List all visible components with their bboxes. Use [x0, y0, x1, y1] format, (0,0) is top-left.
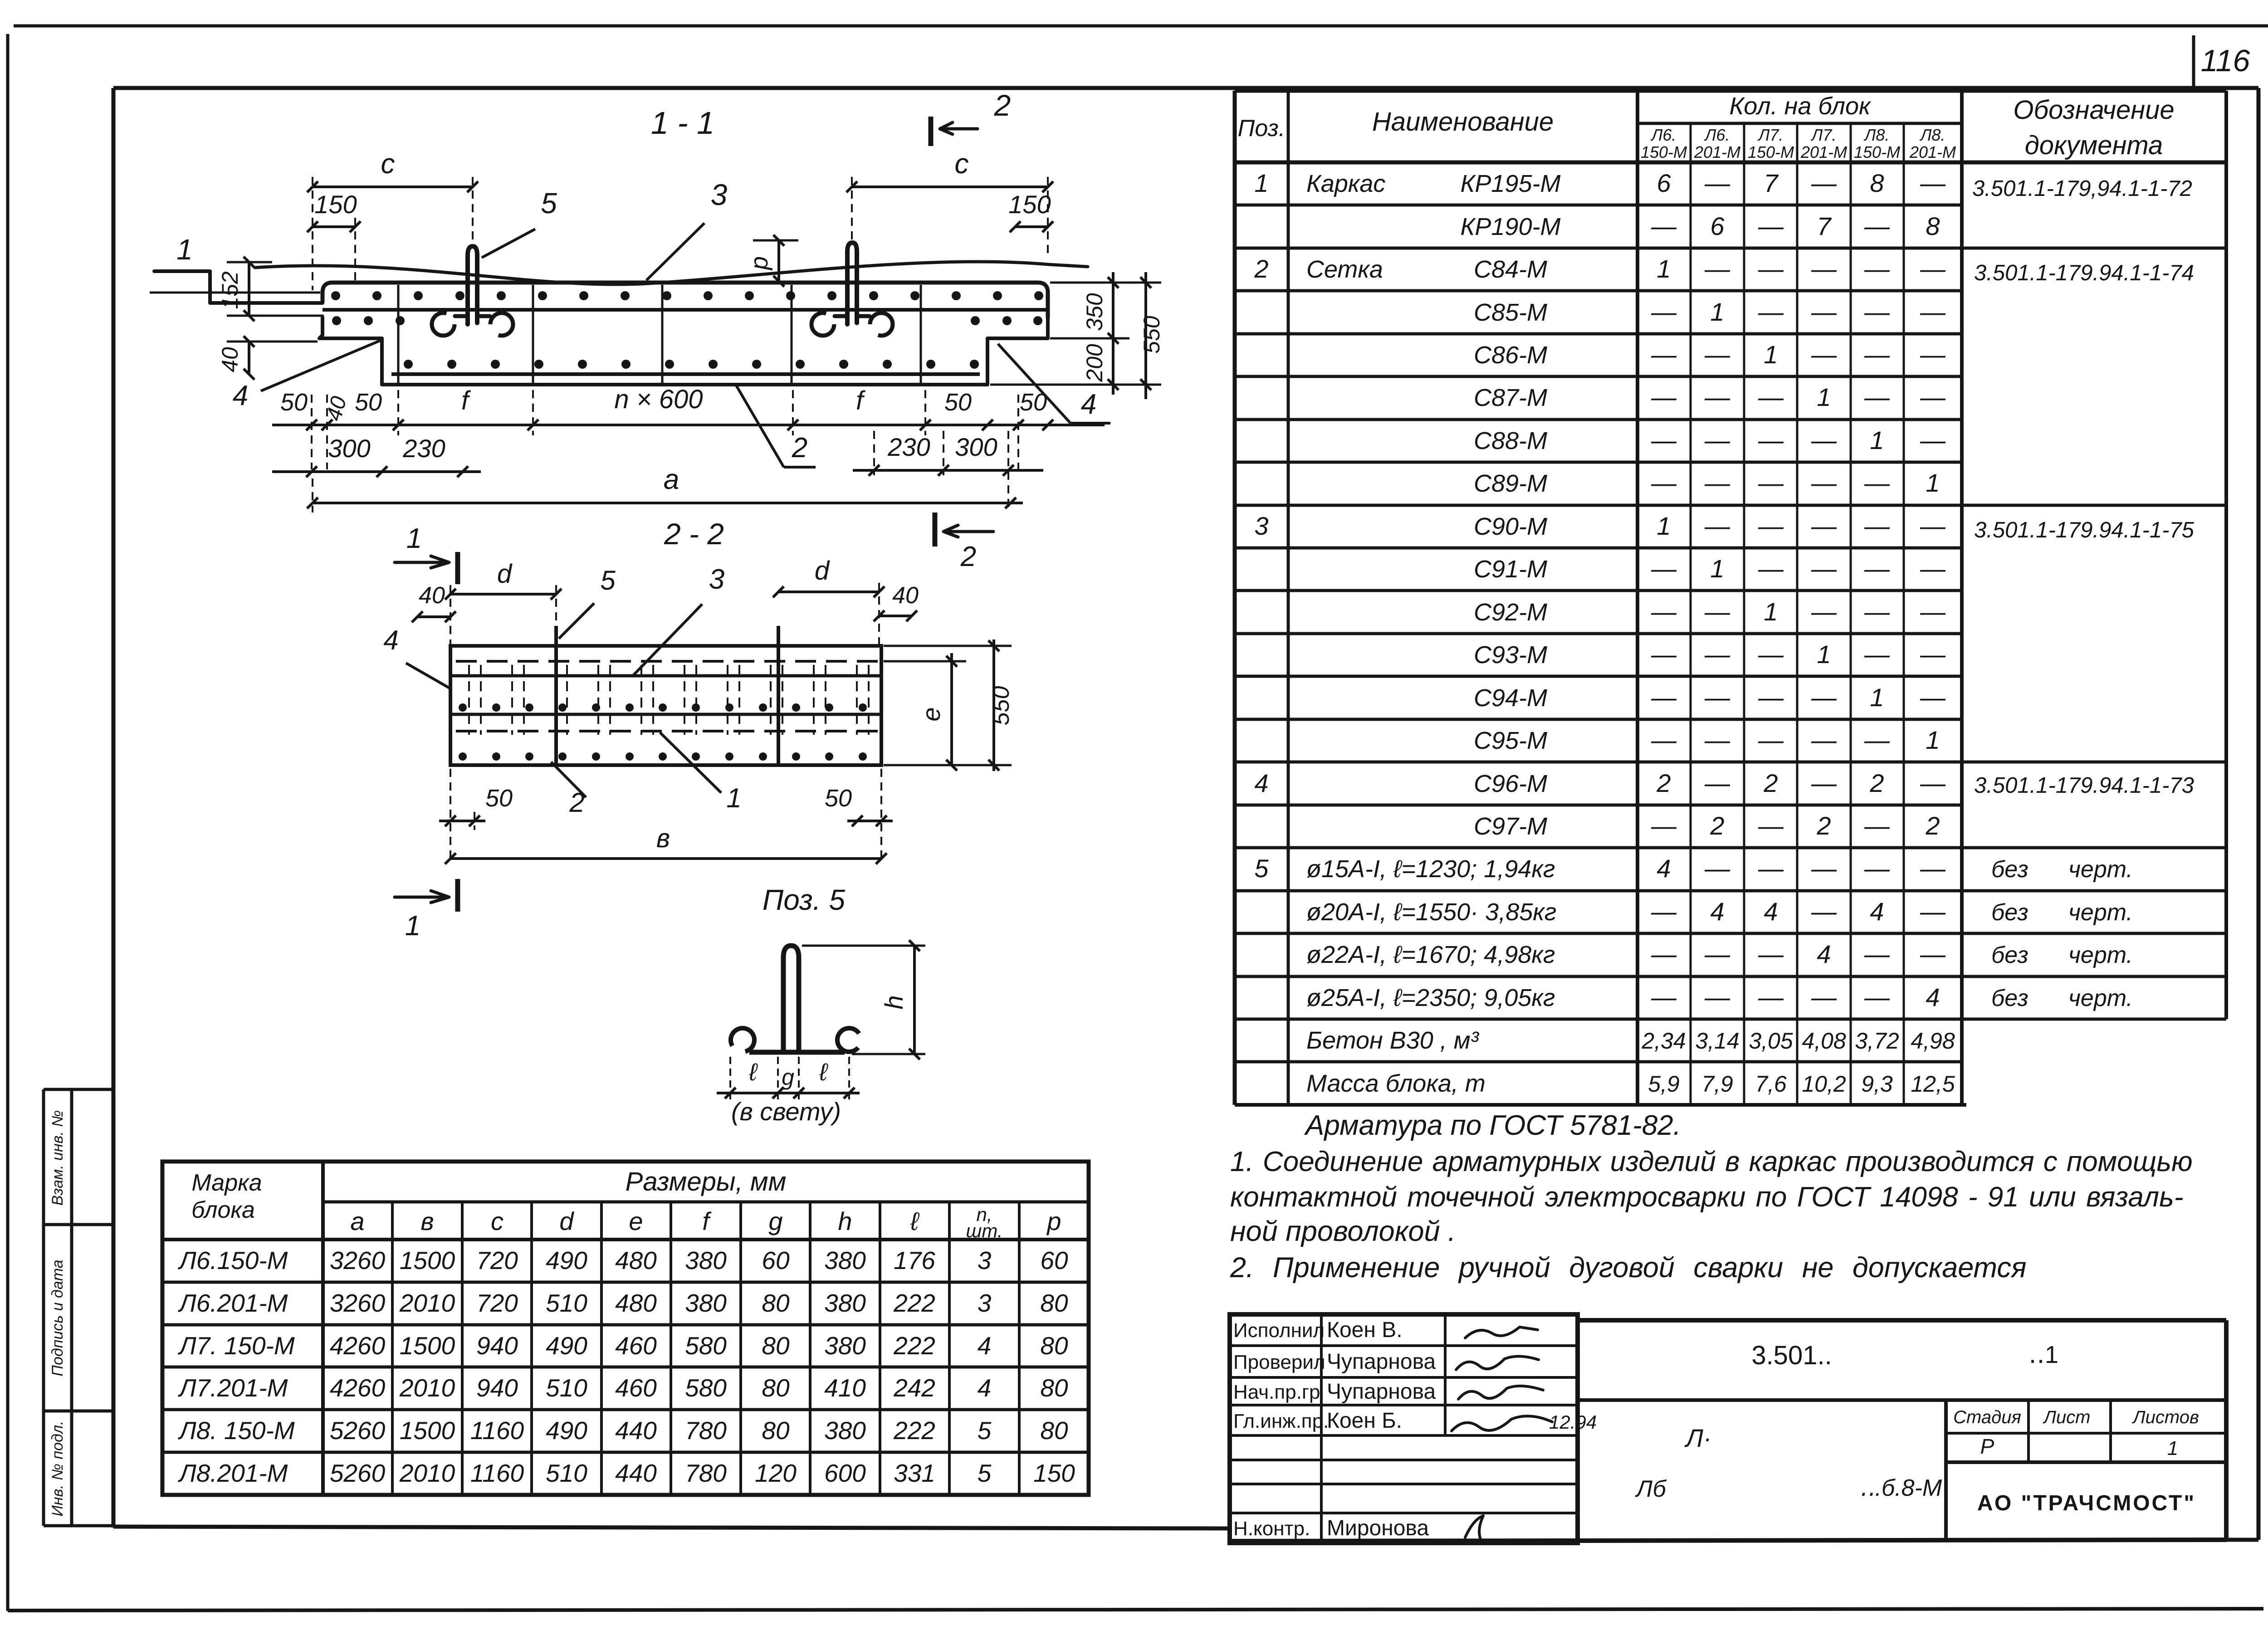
- svg-text:2010: 2010: [399, 1459, 455, 1487]
- svg-text:150: 150: [1033, 1459, 1075, 1487]
- svg-text:Кол. на блок: Кол. на блок: [1729, 93, 1872, 120]
- svg-text:9,3: 9,3: [1861, 1071, 1893, 1097]
- svg-text:60: 60: [1040, 1246, 1068, 1274]
- svg-text:—: —: [1758, 683, 1784, 712]
- svg-text:80: 80: [762, 1332, 790, 1360]
- svg-text:3.501..: 3.501..: [1751, 1341, 1832, 1370]
- svg-text:940: 940: [476, 1374, 518, 1402]
- svg-text:4: 4: [978, 1332, 992, 1360]
- svg-text:Бетон В30 , м³: Бетон В30 , м³: [1306, 1027, 1480, 1054]
- svg-text:n × 600: n × 600: [614, 385, 703, 414]
- svg-text:—: —: [1651, 940, 1677, 968]
- svg-text:780: 780: [685, 1459, 727, 1487]
- svg-text:—: —: [1758, 383, 1784, 411]
- svg-text:—: —: [1920, 254, 1946, 283]
- svg-text:h: h: [880, 995, 908, 1009]
- svg-text:201-М: 201-М: [1800, 143, 1847, 161]
- svg-text:—: —: [1811, 683, 1837, 712]
- svg-text:4: 4: [1657, 854, 1671, 883]
- svg-text:—: —: [1920, 897, 1946, 926]
- svg-text:3.501.1-179.94.1-1-73: 3.501.1-179.94.1-1-73: [1974, 773, 2194, 798]
- svg-text:2: 2: [792, 432, 807, 464]
- svg-text:—: —: [1651, 983, 1677, 1011]
- svg-text:—: —: [1704, 254, 1730, 283]
- svg-text:4: 4: [1926, 983, 1940, 1011]
- svg-text:480: 480: [615, 1246, 657, 1274]
- svg-text:КР190-М: КР190-М: [1461, 213, 1561, 240]
- svg-text:—: —: [1758, 983, 1784, 1011]
- svg-text:ø25А-I, ℓ=2350; 9,05кг: ø25А-I, ℓ=2350; 9,05кг: [1306, 984, 1555, 1011]
- svg-text:350: 350: [1082, 293, 1107, 331]
- svg-text:5,9: 5,9: [1648, 1071, 1680, 1097]
- svg-text:380: 380: [824, 1289, 866, 1317]
- svg-text:без: без: [1991, 942, 2028, 968]
- svg-text:Р: Р: [1980, 1435, 1994, 1458]
- svg-text:без: без: [1991, 985, 2028, 1011]
- svg-text:черт.: черт.: [2068, 899, 2133, 926]
- svg-text:3: 3: [711, 178, 728, 211]
- svg-text:Миронова: Миронова: [1327, 1516, 1429, 1540]
- svg-text:600: 600: [824, 1459, 866, 1487]
- svg-text:7: 7: [1817, 212, 1832, 240]
- svg-text:—: —: [1811, 769, 1837, 797]
- svg-text:8: 8: [1870, 169, 1884, 197]
- svg-text:1160: 1160: [470, 1459, 524, 1487]
- svg-text:—: —: [1811, 298, 1837, 326]
- svg-text:—: —: [1651, 469, 1677, 497]
- svg-text:(в свету): (в свету): [731, 1097, 841, 1126]
- svg-text:5260: 5260: [330, 1459, 386, 1487]
- svg-text:7,9: 7,9: [1701, 1071, 1733, 1097]
- svg-text:4,08: 4,08: [1802, 1028, 1846, 1054]
- svg-text:3260: 3260: [330, 1246, 386, 1274]
- svg-text:—: —: [1920, 169, 1946, 197]
- svg-text:С85-М: С85-М: [1474, 299, 1547, 326]
- svg-text:Листов: Листов: [2131, 1407, 2199, 1427]
- svg-text:1: 1: [405, 910, 420, 942]
- svg-text:—: —: [1758, 554, 1784, 583]
- svg-text:Нач.пр.гр: Нач.пр.гр: [1233, 1381, 1320, 1403]
- svg-text:—: —: [1920, 298, 1946, 326]
- svg-text:242: 242: [893, 1374, 935, 1402]
- svg-text:490: 490: [546, 1332, 587, 1360]
- svg-text:—: —: [1811, 554, 1837, 583]
- svg-text:—: —: [1864, 212, 1890, 240]
- svg-text:ной проволокой .: ной проволокой .: [1230, 1215, 1456, 1247]
- svg-text:Поз.: Поз.: [1238, 115, 1286, 142]
- svg-text:4: 4: [383, 625, 398, 655]
- svg-text:—: —: [1704, 426, 1730, 454]
- svg-text:КР195-М: КР195-М: [1461, 170, 1561, 197]
- svg-text:АО "ТРАЧСМОСТ": АО "ТРАЧСМОСТ": [1977, 1491, 2196, 1515]
- svg-text:5: 5: [978, 1416, 992, 1445]
- svg-text:Сетка: Сетка: [1306, 256, 1383, 283]
- svg-text:—: —: [1864, 298, 1890, 326]
- svg-text:—: —: [1864, 940, 1890, 968]
- svg-text:940: 940: [476, 1332, 518, 1360]
- svg-text:4: 4: [1764, 897, 1778, 926]
- svg-text:Л6.: Л6.: [1704, 126, 1730, 144]
- svg-text:580: 580: [685, 1332, 727, 1360]
- svg-text:—: —: [1704, 940, 1730, 968]
- svg-text:С90-М: С90-М: [1474, 513, 1547, 540]
- svg-text:С87-М: С87-М: [1474, 384, 1547, 411]
- svg-text:—: —: [1651, 554, 1677, 583]
- svg-text:2: 2: [994, 88, 1011, 122]
- svg-text:1: 1: [726, 783, 741, 813]
- svg-text:c: c: [381, 148, 395, 180]
- svg-text:1: 1: [1657, 512, 1671, 540]
- svg-text:g: g: [768, 1207, 782, 1235]
- svg-text:550: 550: [988, 686, 1014, 726]
- svg-text:—: —: [1864, 254, 1890, 283]
- svg-text:5: 5: [600, 565, 616, 596]
- svg-text:Лб: Лб: [1635, 1476, 1667, 1502]
- svg-text:—: —: [1758, 254, 1784, 283]
- svg-text:—: —: [1864, 597, 1890, 626]
- svg-text:Взам. инв. №: Взам. инв. №: [49, 1110, 66, 1206]
- svg-text:Л6.: Л6.: [1651, 126, 1677, 144]
- svg-text:—: —: [1811, 340, 1837, 369]
- svg-text:—: —: [1704, 640, 1730, 669]
- svg-text:шт.: шт.: [966, 1220, 1002, 1241]
- svg-text:Гл.инж.пр.: Гл.инж.пр.: [1233, 1410, 1329, 1432]
- svg-text:Л8.201-М: Л8.201-М: [178, 1459, 288, 1487]
- svg-text:2: 2: [1925, 811, 1940, 840]
- svg-text:4: 4: [1870, 897, 1884, 926]
- svg-text:—: —: [1758, 512, 1784, 540]
- svg-text:1. Соединение арматурных изд: 1. Соединение арматурных изделий в карка…: [1230, 1146, 2193, 1177]
- svg-text:6: 6: [1657, 169, 1671, 197]
- svg-text:1: 1: [1764, 340, 1778, 369]
- svg-text:—: —: [1864, 726, 1890, 754]
- svg-text:Лист: Лист: [2043, 1407, 2091, 1427]
- svg-text:блока: блока: [191, 1197, 255, 1223]
- svg-text:5: 5: [1254, 854, 1269, 883]
- svg-text:—: —: [1811, 469, 1837, 497]
- svg-text:1: 1: [1926, 726, 1940, 754]
- svg-text:380: 380: [685, 1246, 727, 1274]
- svg-text:—: —: [1651, 212, 1677, 240]
- svg-text:80: 80: [762, 1416, 790, 1445]
- svg-text:Л8.: Л8.: [1864, 126, 1890, 144]
- svg-text:580: 580: [685, 1374, 727, 1402]
- svg-text:—: —: [1920, 854, 1946, 883]
- svg-text:150-М: 150-М: [1641, 143, 1687, 161]
- svg-text:—: —: [1920, 597, 1946, 626]
- svg-text:—: —: [1758, 640, 1784, 669]
- svg-text:d: d: [559, 1207, 574, 1235]
- svg-text:80: 80: [762, 1289, 790, 1317]
- svg-text:50: 50: [944, 389, 972, 416]
- svg-text:контактной точечной электрос: контактной точечной электросварки по ГОС…: [1230, 1181, 2183, 1213]
- svg-text:ℓ: ℓ: [910, 1207, 920, 1235]
- svg-text:550: 550: [1139, 316, 1164, 354]
- svg-text:3.501.1-179,94.1-1-72: 3.501.1-179,94.1-1-72: [1972, 176, 2192, 201]
- svg-text:4,98: 4,98: [1911, 1028, 1955, 1054]
- svg-text:380: 380: [824, 1416, 866, 1445]
- svg-text:Поз. 5: Поз. 5: [763, 884, 846, 916]
- svg-text:Стадия: Стадия: [1953, 1407, 2021, 1427]
- svg-text:80: 80: [1040, 1289, 1068, 1317]
- svg-text:Марка: Марка: [191, 1170, 262, 1196]
- svg-text:Исполнил: Исполнил: [1233, 1319, 1325, 1342]
- svg-text:40: 40: [419, 582, 445, 609]
- svg-text:1: 1: [1710, 554, 1724, 583]
- svg-text:—: —: [1651, 640, 1677, 669]
- svg-text:—: —: [1651, 298, 1677, 326]
- svg-text:510: 510: [546, 1289, 587, 1317]
- svg-text:С95-М: С95-М: [1474, 727, 1547, 754]
- svg-text:1: 1: [2167, 1437, 2178, 1460]
- svg-text:С88-М: С88-М: [1474, 427, 1547, 454]
- svg-text:—: —: [1758, 426, 1784, 454]
- svg-text:—: —: [1920, 769, 1946, 797]
- svg-text:—: —: [1920, 512, 1946, 540]
- svg-text:e: e: [917, 707, 945, 721]
- svg-text:—: —: [1864, 383, 1890, 411]
- svg-text:—: —: [1920, 340, 1946, 369]
- svg-text:2: 2: [1763, 769, 1778, 797]
- svg-text:—: —: [1704, 512, 1730, 540]
- svg-text:—: —: [1704, 726, 1730, 754]
- svg-text:в: в: [656, 824, 670, 853]
- svg-text:Н.контр.: Н.контр.: [1233, 1518, 1310, 1540]
- svg-text:p: p: [1046, 1207, 1061, 1235]
- svg-text:7: 7: [1764, 169, 1779, 197]
- svg-text:80: 80: [1040, 1416, 1068, 1445]
- svg-text:Арматура по ГОСТ 5781-82.: Арматура по ГОСТ 5781-82.: [1304, 1110, 1681, 1141]
- svg-text:Чупарнова: Чупарнова: [1327, 1380, 1436, 1404]
- svg-text:7,6: 7,6: [1755, 1071, 1787, 1097]
- svg-text:1: 1: [1764, 597, 1778, 626]
- svg-text:2. Применение ручной дуговой: 2. Применение ручной дуговой сварки не д…: [1230, 1252, 2026, 1284]
- svg-text:Коен Б.: Коен Б.: [1327, 1409, 1402, 1433]
- svg-text:2010: 2010: [399, 1374, 455, 1402]
- svg-text:2: 2: [960, 541, 976, 572]
- svg-text:ø22А-I, ℓ=1670; 4,98кг: ø22А-I, ℓ=1670; 4,98кг: [1306, 941, 1555, 968]
- svg-text:50: 50: [355, 389, 382, 416]
- svg-text:410: 410: [824, 1374, 866, 1402]
- svg-text:50: 50: [1020, 389, 1047, 416]
- svg-text:—: —: [1811, 854, 1837, 883]
- svg-text:—: —: [1651, 897, 1677, 926]
- svg-text:460: 460: [615, 1332, 657, 1360]
- svg-text:—: —: [1704, 383, 1730, 411]
- svg-text:40: 40: [892, 582, 919, 609]
- svg-text:Л8. 150-М: Л8. 150-М: [178, 1416, 295, 1445]
- svg-text:1: 1: [406, 523, 422, 554]
- svg-text:—: —: [1758, 811, 1784, 840]
- svg-text:c: c: [955, 148, 969, 180]
- svg-text:50: 50: [280, 389, 308, 416]
- svg-text:5260: 5260: [330, 1416, 386, 1445]
- svg-text:2: 2: [1710, 811, 1724, 840]
- svg-text:720: 720: [476, 1246, 518, 1274]
- svg-text:3,72: 3,72: [1855, 1028, 1899, 1054]
- svg-text:—: —: [1758, 298, 1784, 326]
- svg-text:—: —: [1811, 426, 1837, 454]
- svg-text:4260: 4260: [330, 1332, 386, 1360]
- svg-text:2: 2: [1816, 811, 1831, 840]
- svg-text:Л·: Л·: [1684, 1424, 1711, 1452]
- svg-text:—: —: [1704, 169, 1730, 197]
- svg-text:—: —: [1704, 983, 1730, 1011]
- svg-text:222: 222: [893, 1332, 935, 1360]
- svg-text:ø20А-I, ℓ=1550· 3,85кг: ø20А-I, ℓ=1550· 3,85кг: [1306, 898, 1556, 926]
- svg-text:60: 60: [762, 1246, 790, 1274]
- svg-text:черт.: черт.: [2068, 942, 2133, 968]
- svg-text:12,5: 12,5: [1911, 1071, 1955, 1097]
- svg-text:3.501.1-179.94.1-1-74: 3.501.1-179.94.1-1-74: [1974, 261, 2194, 285]
- svg-text:4: 4: [1081, 389, 1096, 420]
- svg-text:1: 1: [1870, 683, 1884, 712]
- svg-text:С94-М: С94-М: [1474, 684, 1547, 712]
- svg-text:—: —: [1864, 811, 1890, 840]
- svg-text:2 - 2: 2 - 2: [664, 517, 724, 551]
- svg-text:—: —: [1651, 383, 1677, 411]
- svg-text:50: 50: [485, 785, 513, 812]
- svg-text:—: —: [1920, 940, 1946, 968]
- svg-text:510: 510: [546, 1459, 587, 1487]
- svg-text:—: —: [1651, 726, 1677, 754]
- svg-text:3: 3: [709, 564, 724, 595]
- svg-text:1: 1: [1926, 469, 1940, 497]
- svg-text:Л7. 150-М: Л7. 150-М: [178, 1332, 295, 1360]
- svg-text:480: 480: [615, 1289, 657, 1317]
- svg-text:80: 80: [1040, 1374, 1068, 1402]
- svg-text:Наименование: Наименование: [1372, 107, 1554, 137]
- svg-text:1 - 1: 1 - 1: [651, 105, 714, 141]
- svg-text:—: —: [1920, 683, 1946, 712]
- svg-text:1500: 1500: [400, 1416, 455, 1445]
- svg-text:1500: 1500: [400, 1332, 455, 1360]
- svg-text:222: 222: [893, 1416, 935, 1445]
- svg-text:—: —: [1704, 769, 1730, 797]
- svg-text:a: a: [350, 1207, 364, 1235]
- svg-text:5: 5: [978, 1459, 992, 1487]
- svg-text:—: —: [1920, 640, 1946, 669]
- svg-text:720: 720: [476, 1289, 518, 1317]
- svg-text:a: a: [664, 464, 679, 495]
- svg-text:150-М: 150-М: [1854, 143, 1900, 161]
- svg-text:120: 120: [755, 1459, 797, 1487]
- svg-text:3,05: 3,05: [1749, 1028, 1793, 1054]
- svg-text:—: —: [1811, 597, 1837, 626]
- svg-text:c: c: [491, 1207, 503, 1235]
- svg-text:без: без: [1991, 856, 2028, 883]
- svg-text:d: d: [497, 559, 513, 589]
- svg-text:Проверил: Проверил: [1233, 1351, 1325, 1373]
- svg-text:—: —: [1811, 254, 1837, 283]
- svg-text:3: 3: [1254, 512, 1268, 540]
- svg-text:e: e: [629, 1207, 643, 1235]
- svg-text:3.501.1-179.94.1-1-75: 3.501.1-179.94.1-1-75: [1974, 518, 2195, 542]
- svg-text:230: 230: [887, 433, 930, 461]
- svg-text:Коен В.: Коен В.: [1327, 1318, 1403, 1342]
- svg-text:201-М: 201-М: [1694, 143, 1740, 161]
- svg-text:1500: 1500: [400, 1246, 455, 1274]
- svg-text:—: —: [1864, 554, 1890, 583]
- svg-text:черт.: черт.: [2068, 985, 2133, 1011]
- svg-text:С92-М: С92-М: [1474, 599, 1547, 626]
- svg-text:‥1: ‥1: [2028, 1341, 2058, 1368]
- svg-text:331: 331: [894, 1459, 935, 1487]
- svg-text:2,34: 2,34: [1641, 1028, 1686, 1054]
- svg-text:черт.: черт.: [2068, 856, 2133, 883]
- svg-text:80: 80: [762, 1374, 790, 1402]
- svg-text:380: 380: [685, 1289, 727, 1317]
- svg-text:d: d: [815, 556, 830, 586]
- svg-text:—: —: [1651, 340, 1677, 369]
- svg-text:Масса блока, т: Масса блока, т: [1306, 1070, 1486, 1097]
- svg-text:g: g: [782, 1064, 794, 1090]
- svg-text:150: 150: [314, 190, 357, 219]
- svg-text:4: 4: [1710, 897, 1724, 926]
- svg-text:—: —: [1811, 512, 1837, 540]
- svg-text:—: —: [1704, 469, 1730, 497]
- svg-text:1: 1: [1710, 298, 1724, 326]
- svg-text:3,14: 3,14: [1695, 1028, 1739, 1054]
- svg-text:1: 1: [1817, 383, 1831, 411]
- svg-text:152: 152: [217, 271, 243, 309]
- svg-text:С89-М: С89-М: [1474, 470, 1547, 497]
- svg-text:Л7.201-М: Л7.201-М: [178, 1374, 288, 1402]
- svg-text:—: —: [1758, 940, 1784, 968]
- svg-text:4: 4: [233, 380, 248, 411]
- svg-text:в: в: [420, 1207, 434, 1235]
- svg-text:10,2: 10,2: [1802, 1071, 1846, 1097]
- svg-text:2: 2: [1656, 769, 1671, 797]
- svg-text:150-М: 150-М: [1748, 143, 1794, 161]
- svg-text:Л8.: Л8.: [1920, 126, 1945, 144]
- svg-text:Каркас: Каркас: [1306, 170, 1385, 197]
- svg-text:—: —: [1864, 640, 1890, 669]
- svg-text:Л6.201-М: Л6.201-М: [178, 1289, 288, 1317]
- svg-text:документа: документа: [2025, 131, 2163, 160]
- svg-text:3: 3: [978, 1246, 992, 1274]
- svg-text:460: 460: [615, 1374, 657, 1402]
- svg-text:p: p: [746, 256, 773, 271]
- svg-text:440: 440: [615, 1416, 657, 1445]
- svg-text:—: —: [1811, 169, 1837, 197]
- svg-text:h: h: [838, 1207, 852, 1235]
- svg-text:Инв. № подл.: Инв. № подл.: [49, 1421, 66, 1517]
- svg-text:—: —: [1758, 212, 1784, 240]
- svg-text:—: —: [1704, 683, 1730, 712]
- svg-text:5: 5: [541, 187, 557, 220]
- svg-text:—: —: [1651, 597, 1677, 626]
- svg-text:4: 4: [1254, 769, 1268, 797]
- svg-text:ø15А-I, ℓ=1230; 1,94кг: ø15А-I, ℓ=1230; 1,94кг: [1306, 855, 1555, 883]
- svg-text:1: 1: [1254, 169, 1268, 197]
- svg-text:6: 6: [1710, 212, 1725, 240]
- svg-text:—: —: [1920, 383, 1946, 411]
- svg-text:380: 380: [824, 1246, 866, 1274]
- svg-text:С96-М: С96-М: [1474, 770, 1547, 797]
- svg-text:ℓ: ℓ: [748, 1059, 758, 1086]
- svg-text:С93-М: С93-М: [1474, 641, 1547, 669]
- svg-text:440: 440: [615, 1459, 657, 1487]
- svg-text:С91-М: С91-М: [1474, 556, 1547, 583]
- svg-text:780: 780: [685, 1416, 727, 1445]
- svg-text:3260: 3260: [330, 1289, 386, 1317]
- svg-text:Л6.150-М: Л6.150-М: [178, 1246, 288, 1274]
- svg-text:2010: 2010: [399, 1289, 455, 1317]
- svg-text:490: 490: [546, 1246, 587, 1274]
- svg-text:—: —: [1864, 512, 1890, 540]
- svg-text:201-М: 201-М: [1909, 143, 1956, 161]
